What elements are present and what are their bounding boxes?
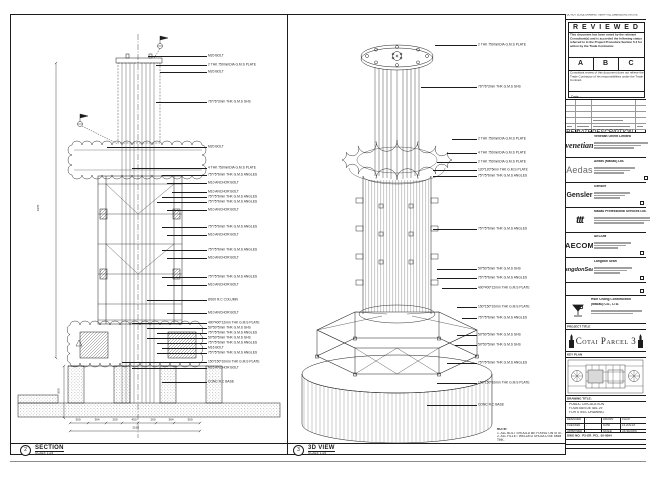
- dim-value: 364: [169, 419, 174, 422]
- mps-logo: ttt: [576, 215, 583, 226]
- tower-icon: [637, 334, 644, 348]
- consultant-row-aecom: AECOM AECOM: [566, 233, 646, 258]
- date-label: Date :: [571, 95, 581, 99]
- consultant-checkbox[interactable]: [640, 251, 644, 255]
- status-option-c[interactable]: C: [619, 58, 644, 70]
- status-options: A B C: [569, 58, 644, 71]
- aedas-logo: Aedas: [566, 165, 593, 175]
- drawing-title: PUBLIC CIRCULATION FOUNTAIN DETAIL 29 FO…: [566, 402, 646, 418]
- status-option-a[interactable]: A: [569, 58, 594, 70]
- dwg-no-value: P3-GR_PCL_05-0094: [582, 435, 612, 438]
- date-row[interactable]: Date :: [569, 92, 644, 100]
- project-name: Cotai Parcel 3: [575, 336, 637, 346]
- callout: CONC R.C BASE: [427, 403, 525, 407]
- aecom-logo: AECOM: [566, 241, 593, 250]
- reviewed-para1: This document has been noted by the rele…: [569, 33, 644, 49]
- fields-table: DESIGNED - DRAWN CHAO CHECKED - DATE 14-…: [566, 418, 646, 433]
- view3d-callouts-layer: 2 THK 750mmDIA G.M.S PLATE76*76*3mm THK …: [287, 14, 565, 443]
- consultant-name: Gensler: [594, 185, 644, 188]
- callout: 75*75*6mm THK G.M.S ANGLES: [433, 227, 567, 231]
- callout: 400*400*12mm THK G.M.S PLATE: [442, 286, 572, 290]
- notes-line-2: 2. ALL FILLET WELDED SHOULD BE 6MM THK.: [497, 435, 567, 443]
- callout: 2 THK 750mmDIA G.M.S PLATE: [437, 160, 565, 164]
- view3d-bubble: 3: [293, 445, 304, 456]
- consultant-row-gensler: Gensler Gensler: [566, 183, 646, 208]
- dwg-no-label: DWG NO.: [567, 435, 581, 438]
- consultant-row-venetian: venetian Venetian Orient Limited: [566, 133, 646, 158]
- contractor-block: Hsin Chong Construction (Macau) CO., LTD…: [566, 296, 646, 324]
- consultant-checkbox[interactable]: [644, 176, 648, 180]
- reviewed-title: R E V I E W E D: [569, 23, 644, 33]
- title-block: DO NOT SCALE DRAWING. VERIFY ALL DIMENSI…: [565, 14, 646, 455]
- section-title: SECTION: [35, 445, 64, 452]
- callout: 150*150*10mm THK G.M.S PLATE: [437, 381, 572, 385]
- contractor-logo: [566, 296, 590, 323]
- contractor-name-1: Hsin Chong Construction: [591, 298, 646, 301]
- drawing-sheet: { "colors": { "line": "#1c1c1c", "paper"…: [0, 0, 650, 488]
- tower-icon: [568, 334, 575, 348]
- callout: 75*75*6mm THK G.M.S ANGLES: [437, 276, 567, 280]
- callout: 2 THK 750mmDIA G.M.S PLATE: [452, 137, 565, 141]
- callout: 50*50*5mm THK G.M.S SHS: [437, 267, 556, 271]
- dim-total: 2160: [132, 427, 139, 430]
- consultant-checkbox[interactable]: [640, 201, 644, 205]
- consultant-row-langdonseah: LangdonSeah Langdon Seah: [566, 258, 646, 283]
- reviewed-para2: Consultant review of this document does …: [569, 71, 644, 83]
- callout: 76*76*3mm THK G.M.S SHS: [421, 85, 556, 89]
- status-option-b[interactable]: B: [594, 58, 619, 70]
- consultant-name: Aedas (Macau) Ltd.: [594, 160, 648, 163]
- project-name-row: Cotai Parcel 3: [566, 330, 646, 352]
- section-bubble: 2: [20, 445, 31, 456]
- contractor-name-2: (Macau) CO., LTD.: [591, 303, 646, 306]
- dwg-no-row: DWG NO. P3-GR_PCL_05-0094 REV : C: [566, 433, 646, 440]
- callout: 75*75*6mm THK G.M.S ANGLES: [433, 174, 567, 178]
- revision-table: REV DATE DESCRIPTION: [566, 100, 646, 133]
- callout: 4 THK 750mmDIA G.M.S PLATE: [447, 151, 565, 155]
- section-dim-base: 800: [58, 388, 61, 393]
- consultant-name: Macau Professional Services Ltd.: [594, 210, 650, 213]
- callout: 2 THK 750mmDIA G.M.S PLATE: [435, 43, 565, 47]
- consultant-name: AECOM: [594, 235, 644, 238]
- section-scale: SCALE 1:25: [35, 452, 53, 455]
- section-dims-layer: 3003642004502003643002160: [10, 14, 287, 443]
- gensler-logo: Gensler: [566, 192, 592, 199]
- consultant-checkbox[interactable]: [640, 289, 644, 293]
- callout: 150*150*10mm THK G.M.S PLATE: [457, 305, 572, 309]
- langdonseah-logo: LangdonSeah: [566, 267, 593, 273]
- consultant-row-mps: ttt Macau Professional Services Ltd.: [566, 208, 646, 233]
- sheet-shadow-line: [10, 461, 646, 462]
- callout: 75*75*6mm THK G.M.S ANGLES: [462, 316, 567, 320]
- callout: 50*50*5mm THK G.M.S SHS: [455, 343, 556, 347]
- callout: 120*120*5mm THK G.M.S PLATE: [433, 168, 568, 172]
- consultant-name: Langdon Seah: [594, 260, 644, 263]
- reviewed-stamp: R E V I E W E D This document has been n…: [566, 20, 646, 100]
- dim-value: 300: [76, 419, 81, 422]
- empty-consultant-row: [566, 283, 646, 296]
- dim-value: 450: [132, 419, 137, 422]
- dim-value: 200: [113, 419, 118, 422]
- dim-value: 200: [150, 419, 155, 422]
- consultant-checkbox[interactable]: [640, 276, 644, 280]
- venetian-logo: venetian: [566, 141, 593, 150]
- view3d-title: 3D VIEW: [308, 445, 335, 452]
- view3d-scale: SCALE 1:25: [308, 452, 326, 455]
- drawing-title-line-3: FOR STEEL DRAWING: [569, 411, 646, 415]
- label-strip-line: [10, 443, 565, 444]
- notes-block: NOTE: 1. ALL BOLT SHOULD BE FIXING ON SI…: [497, 428, 567, 450]
- callout: 75*75*6mm THK G.M.S ANGLES: [447, 361, 567, 365]
- consultant-name: Venetian Orient Limited: [594, 135, 650, 138]
- section-dim-tall: 1970: [37, 205, 40, 212]
- dim-value: 364: [94, 419, 99, 422]
- key-plan: [566, 358, 646, 396]
- consultant-row-aedas: Aedas Aedas (Macau) Ltd.: [566, 158, 646, 183]
- date-fill-line: [587, 96, 641, 98]
- cad-file-row-3: REFERENCE CAD FILE NAME :: [566, 449, 646, 454]
- callout: 50*50*5mm THK G.M.S SHS: [457, 333, 556, 337]
- dim-value: 300: [187, 419, 192, 422]
